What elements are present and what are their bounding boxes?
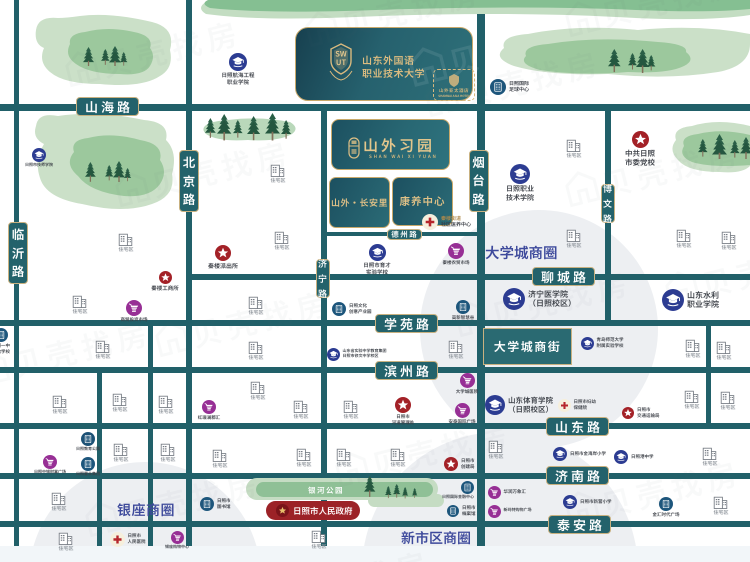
svg-text:UT: UT	[336, 57, 347, 68]
